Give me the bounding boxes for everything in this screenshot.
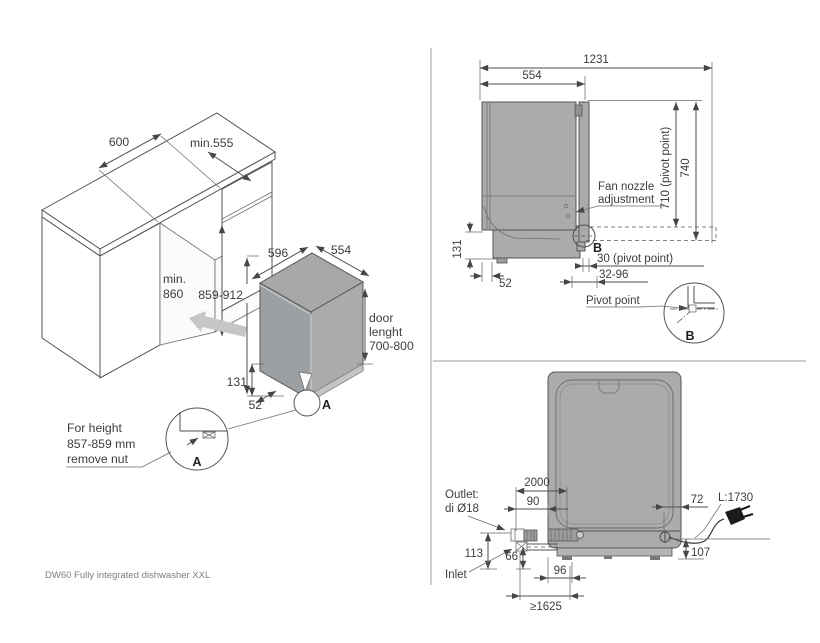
detail-a-label: A — [192, 455, 201, 469]
pivot-point-label: Pivot point — [586, 295, 641, 307]
dishwasher-iso — [260, 253, 363, 401]
dim-cord-height: 107 — [691, 547, 710, 559]
dim-drain-hose-length: 2000 — [524, 477, 550, 489]
pivot-detail-label: B — [685, 329, 694, 343]
dim-drain-offset: 90 — [527, 496, 540, 508]
detail-a-marker-circle — [294, 390, 320, 416]
sv-body — [482, 102, 576, 230]
rv-plinth — [557, 548, 672, 556]
dim-height-pivot: 710 (pivot point) — [660, 127, 672, 210]
inlet-label: Inlet — [445, 569, 468, 581]
sv-door-bracket — [575, 105, 582, 116]
fan-nozzle-label-2: adjustment — [598, 194, 655, 206]
dim-cord-offset: 72 — [691, 494, 704, 506]
dim-door-2: lenght — [369, 325, 403, 339]
note-line-3: remove nut — [67, 452, 129, 466]
drain-hose — [511, 529, 584, 541]
outlet-label-2: di Ø18 — [445, 503, 479, 515]
cabinet-drawing — [42, 113, 275, 378]
dim-cord-length: L:1730 — [718, 492, 753, 504]
dim-body-depth: 554 — [522, 70, 542, 82]
dim-dw-depth: 554 — [331, 243, 352, 257]
dim-door-3: 700-800 — [369, 339, 414, 353]
dim-inlet-height: 66 — [505, 551, 518, 563]
dim-height-total: 740 — [680, 158, 692, 177]
detail-a-marker-label: A — [322, 398, 331, 412]
dim-hose-reach: ≥1625 — [530, 601, 562, 613]
technical-drawing: 600 min.555 min. 860 596 554 859-912 — [0, 0, 820, 643]
rear-view: 2000 90 72 L:1730 Outlet: di Ø18 113 66 … — [445, 372, 770, 613]
dim-sv-plinth-height: 131 — [452, 239, 464, 258]
note-line-2: 857-859 mm — [67, 437, 135, 451]
dim-plinth-height: 131 — [227, 375, 248, 389]
detail-a-callout: A For height 857-859 mm remove nut — [66, 408, 296, 470]
note-line-1: For height — [67, 421, 122, 435]
dim-outlet-height: 113 — [465, 548, 483, 560]
dim-pivot-offset: 30 (pivot point) — [597, 253, 673, 265]
dim-depth-door-open: 1231 — [583, 54, 609, 66]
dim-sv-plinth-depth: 52 — [499, 278, 512, 290]
power-plug-icon — [725, 506, 753, 525]
footer-model-text: DW60 Fully integrated dishwasher XXL — [45, 570, 210, 581]
dim-niche-height-2: 860 — [163, 287, 184, 301]
pivot-detail-callout: Pivot point B — [586, 283, 724, 343]
dim-dw-width: 596 — [268, 246, 289, 260]
dim-door-1: door — [369, 311, 393, 325]
side-view: 1231 554 710 (pivot point) 740 — [452, 54, 716, 290]
dim-niche-depth: min.555 — [190, 136, 234, 150]
dim-dw-height: 859-912 — [198, 288, 243, 302]
isometric-view: 600 min.555 min. 860 596 554 859-912 — [42, 113, 414, 416]
sv-door — [579, 102, 589, 242]
outlet-label-1: Outlet: — [445, 489, 479, 501]
rv-outer — [548, 372, 681, 548]
pivot-point-mark — [689, 305, 696, 312]
fan-nozzle-label-1: Fan nozzle — [598, 181, 654, 193]
dim-pivot-range: 32-96 — [599, 269, 628, 281]
dim-drain-position: 96 — [554, 565, 567, 577]
outlet-connector — [511, 529, 524, 541]
installation-drawing-page: 600 min.555 min. 860 596 554 859-912 — [0, 0, 820, 643]
dim-niche-height-1: min. — [163, 272, 186, 286]
sv-base — [493, 226, 580, 258]
dim-plinth-depth: 52 — [248, 398, 262, 412]
dim-niche-width: 600 — [109, 135, 130, 149]
